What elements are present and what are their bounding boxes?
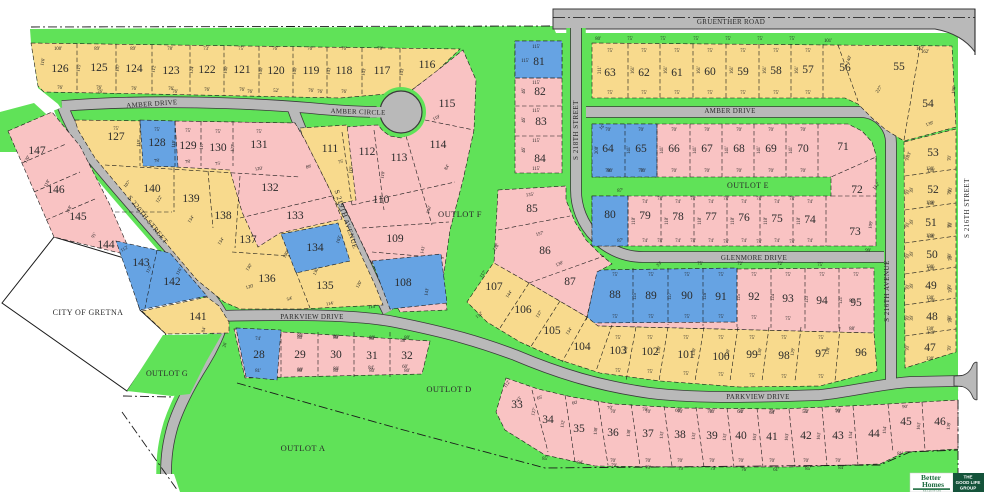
svg-text:113: 113 — [391, 152, 408, 164]
svg-text:70': 70' — [677, 459, 683, 464]
svg-text:125: 125 — [90, 62, 108, 74]
svg-text:70': 70' — [605, 128, 611, 133]
svg-text:75: 75 — [771, 213, 783, 225]
svg-text:140: 140 — [143, 183, 161, 195]
svg-text:70': 70' — [707, 410, 713, 415]
svg-text:38: 38 — [674, 429, 686, 441]
svg-text:71: 71 — [837, 141, 849, 153]
svg-text:141': 141' — [757, 146, 762, 154]
svg-text:75': 75' — [612, 315, 618, 320]
svg-text:80': 80' — [297, 334, 303, 339]
svg-text:79': 79' — [710, 467, 716, 472]
svg-text:115: 115 — [439, 98, 456, 110]
svg-text:AMBER DRIVE: AMBER DRIVE — [704, 107, 755, 115]
svg-text:54: 54 — [922, 98, 934, 110]
svg-text:75': 75' — [612, 273, 618, 278]
svg-text:39': 39' — [910, 187, 915, 193]
svg-text:76': 76' — [57, 86, 63, 91]
svg-text:115': 115' — [532, 167, 540, 172]
svg-text:129: 129 — [179, 140, 197, 152]
svg-text:105: 105 — [543, 325, 561, 337]
svg-text:77: 77 — [705, 211, 717, 223]
svg-text:75': 75' — [683, 372, 689, 377]
svg-text:93: 93 — [782, 293, 794, 305]
svg-text:70': 70' — [645, 459, 651, 464]
svg-text:163': 163' — [785, 433, 791, 441]
svg-text:89': 89' — [94, 47, 100, 52]
svg-text:115': 115' — [532, 109, 540, 114]
svg-text:75': 75' — [785, 273, 791, 278]
svg-text:74': 74' — [774, 200, 780, 205]
svg-text:80': 80' — [297, 368, 303, 373]
svg-text:85': 85' — [805, 467, 811, 472]
svg-text:THE: THE — [964, 475, 973, 480]
svg-text:75': 75' — [693, 37, 699, 42]
svg-text:75': 75' — [707, 91, 713, 96]
svg-text:118': 118' — [731, 217, 736, 225]
svg-text:89': 89' — [130, 47, 136, 52]
svg-text:84': 84' — [838, 466, 844, 471]
svg-text:161': 161' — [730, 66, 735, 74]
svg-text:55': 55' — [802, 410, 808, 415]
svg-text:75': 75' — [697, 262, 703, 267]
svg-text:139: 139 — [182, 193, 200, 205]
svg-text:75': 75' — [751, 316, 757, 321]
svg-text:75': 75' — [757, 37, 763, 42]
svg-text:131': 131' — [692, 432, 698, 440]
svg-text:118': 118' — [698, 217, 703, 225]
svg-text:78': 78' — [167, 47, 173, 52]
svg-text:Homes: Homes — [922, 480, 944, 489]
svg-text:78': 78' — [377, 47, 383, 52]
svg-text:123: 123 — [162, 65, 180, 77]
svg-text:74': 74' — [675, 200, 681, 205]
svg-text:115': 115' — [532, 81, 540, 86]
svg-text:70': 70' — [768, 169, 774, 174]
svg-text:74': 74' — [675, 239, 681, 244]
svg-text:64: 64 — [602, 143, 614, 155]
svg-text:70': 70' — [803, 459, 809, 464]
svg-text:70': 70' — [949, 187, 954, 193]
svg-text:128: 128 — [148, 137, 166, 149]
svg-text:OUTLOT A: OUTLOT A — [281, 443, 326, 453]
svg-text:114': 114' — [368, 305, 376, 311]
svg-text:75': 75' — [781, 375, 787, 380]
svg-text:117': 117' — [200, 142, 206, 150]
svg-text:76': 76' — [168, 87, 174, 92]
svg-text:74': 74' — [708, 239, 714, 244]
svg-text:75': 75' — [773, 49, 779, 54]
svg-text:PARKVIEW DRIVE: PARKVIEW DRIVE — [726, 393, 790, 401]
svg-text:75': 75' — [817, 263, 823, 268]
svg-text:61': 61' — [773, 468, 779, 473]
svg-text:76': 76' — [307, 47, 313, 52]
svg-text:75': 75' — [185, 129, 191, 134]
svg-text:46': 46' — [522, 147, 527, 153]
svg-text:75': 75' — [740, 91, 746, 96]
svg-text:136: 136 — [258, 273, 276, 285]
svg-text:87: 87 — [564, 276, 576, 288]
svg-text:55: 55 — [893, 61, 905, 73]
svg-text:131': 131' — [723, 433, 729, 441]
svg-text:88': 88' — [849, 299, 855, 304]
svg-text:80': 80' — [369, 337, 375, 342]
svg-text:73': 73' — [203, 47, 209, 52]
svg-text:30: 30 — [330, 349, 342, 361]
svg-text:106: 106 — [514, 304, 532, 316]
svg-text:161': 161' — [664, 66, 669, 74]
svg-text:74: 74 — [804, 214, 816, 226]
svg-text:76': 76' — [96, 86, 102, 91]
svg-text:74': 74' — [690, 197, 696, 202]
svg-text:58': 58' — [400, 339, 406, 344]
svg-text:78': 78' — [154, 159, 160, 165]
svg-text:41: 41 — [766, 431, 778, 443]
svg-text:75': 75' — [781, 336, 787, 341]
svg-text:130: 130 — [209, 142, 227, 154]
svg-text:108: 108 — [394, 277, 412, 289]
svg-text:62: 62 — [638, 67, 650, 79]
svg-text:72': 72' — [777, 262, 783, 267]
svg-text:89: 89 — [645, 290, 657, 302]
svg-text:70': 70' — [607, 406, 613, 411]
svg-text:69: 69 — [765, 143, 777, 155]
svg-text:127: 127 — [107, 131, 125, 143]
svg-text:110': 110' — [172, 140, 178, 148]
svg-text:78: 78 — [672, 211, 684, 223]
svg-text:146: 146 — [47, 184, 65, 196]
svg-text:124: 124 — [125, 63, 143, 75]
svg-text:83: 83 — [535, 116, 547, 128]
svg-text:75': 75' — [684, 315, 690, 320]
svg-text:75': 75' — [648, 315, 654, 320]
svg-text:74': 74' — [657, 197, 663, 202]
svg-text:61: 61 — [671, 67, 683, 79]
svg-text:88: 88 — [609, 289, 621, 301]
svg-text:74': 74' — [723, 240, 729, 245]
svg-text:75': 75' — [818, 375, 824, 380]
svg-text:75': 75' — [805, 91, 811, 96]
svg-text:74': 74' — [642, 239, 648, 244]
svg-text:76: 76 — [738, 212, 750, 224]
svg-text:80': 80' — [333, 335, 339, 340]
svg-text:130': 130' — [926, 357, 934, 362]
svg-text:70': 70' — [642, 408, 648, 413]
svg-text:74': 74' — [789, 240, 795, 245]
svg-text:75': 75' — [773, 91, 779, 96]
svg-text:161': 161' — [795, 66, 800, 74]
svg-text:76': 76' — [308, 89, 314, 94]
svg-text:115': 115' — [532, 45, 540, 50]
svg-text:39': 39' — [910, 251, 915, 257]
svg-text:112: 112 — [359, 146, 376, 158]
svg-text:70': 70' — [738, 459, 744, 464]
svg-text:118: 118 — [336, 65, 353, 77]
svg-text:75': 75' — [740, 49, 746, 54]
svg-text:79': 79' — [611, 464, 617, 469]
svg-text:130': 130' — [927, 267, 935, 272]
svg-text:75': 75' — [648, 273, 654, 278]
svg-text:76': 76' — [341, 90, 347, 95]
svg-text:75': 75' — [641, 49, 647, 54]
svg-text:74': 74' — [774, 239, 780, 244]
svg-text:75': 75' — [805, 49, 811, 54]
svg-text:72: 72 — [851, 184, 863, 196]
svg-text:40: 40 — [735, 430, 747, 442]
svg-text:S 218TH STREET: S 218TH STREET — [572, 100, 580, 160]
svg-text:110: 110 — [373, 194, 390, 206]
svg-text:57: 57 — [802, 64, 814, 76]
svg-text:118': 118' — [665, 217, 670, 225]
svg-text:147: 147 — [28, 145, 46, 157]
svg-text:161': 161' — [631, 66, 636, 74]
svg-text:161': 161' — [817, 432, 823, 440]
svg-text:63: 63 — [604, 67, 616, 79]
svg-text:142: 142 — [163, 276, 181, 288]
svg-text:138': 138' — [594, 427, 600, 435]
svg-text:141': 141' — [627, 146, 632, 154]
svg-text:75': 75' — [660, 37, 666, 42]
svg-text:68: 68 — [733, 143, 745, 155]
svg-text:76': 76' — [204, 88, 210, 93]
svg-text:64': 64' — [737, 410, 743, 415]
svg-text:80': 80' — [595, 37, 601, 42]
svg-text:84: 84 — [534, 153, 546, 165]
svg-text:75': 75' — [238, 47, 244, 52]
svg-text:75': 75' — [684, 273, 690, 278]
svg-text:OUTLOT F: OUTLOT F — [438, 209, 482, 219]
svg-text:31: 31 — [366, 350, 378, 362]
svg-text:122: 122 — [198, 64, 216, 76]
svg-text:130': 130' — [927, 202, 935, 207]
svg-text:90': 90' — [835, 409, 841, 414]
svg-text:101': 101' — [824, 39, 832, 44]
svg-text:75': 75' — [647, 370, 653, 375]
svg-text:130': 130' — [927, 235, 935, 240]
svg-text:141': 141' — [693, 146, 698, 154]
svg-text:145: 145 — [69, 211, 87, 223]
svg-text:70': 70' — [949, 317, 954, 323]
svg-text:S 216TH STREET: S 216TH STREET — [963, 178, 971, 238]
svg-text:70': 70' — [949, 222, 954, 228]
svg-text:126': 126' — [703, 292, 708, 300]
svg-text:52': 52' — [273, 89, 279, 94]
svg-text:GRUENTHER ROAD: GRUENTHER ROAD — [697, 18, 765, 26]
svg-text:135': 135' — [526, 193, 534, 199]
svg-text:39': 39' — [910, 219, 915, 225]
svg-text:65: 65 — [635, 143, 647, 155]
svg-text:75': 75' — [819, 273, 825, 278]
svg-text:70': 70' — [800, 169, 806, 174]
svg-text:34: 34 — [542, 414, 554, 426]
svg-text:125': 125' — [737, 293, 742, 301]
svg-text:119: 119 — [303, 65, 320, 77]
svg-text:138: 138 — [214, 210, 232, 222]
svg-text:35: 35 — [573, 423, 585, 435]
svg-text:75': 75' — [674, 91, 680, 96]
svg-text:81: 81 — [533, 56, 545, 68]
svg-text:51: 51 — [925, 217, 937, 229]
svg-text:90': 90' — [902, 405, 908, 410]
svg-text:74': 74' — [756, 197, 762, 202]
svg-text:70': 70' — [835, 459, 841, 464]
svg-text:32: 32 — [401, 350, 413, 362]
svg-text:CITY OF GRETNA: CITY OF GRETNA — [53, 308, 124, 317]
svg-text:130': 130' — [927, 331, 935, 336]
svg-text:85': 85' — [542, 457, 548, 462]
svg-text:130': 130' — [927, 299, 935, 304]
svg-text:75': 75' — [641, 91, 647, 96]
svg-text:109: 109 — [386, 233, 404, 245]
svg-text:76': 76' — [239, 88, 245, 93]
svg-text:70': 70' — [949, 255, 954, 261]
svg-text:74': 74' — [708, 200, 714, 205]
svg-text:75': 75' — [154, 128, 160, 133]
svg-text:92: 92 — [748, 291, 760, 303]
svg-text:74': 74' — [807, 239, 813, 244]
svg-text:211': 211' — [598, 66, 603, 74]
svg-text:70': 70' — [768, 128, 774, 133]
svg-text:154': 154' — [883, 426, 889, 434]
svg-text:79': 79' — [678, 467, 684, 472]
svg-text:37: 37 — [642, 428, 654, 440]
svg-text:126: 126 — [51, 63, 69, 75]
svg-text:60: 60 — [704, 66, 716, 78]
svg-text:99': 99' — [865, 249, 871, 254]
svg-text:131: 131 — [250, 139, 268, 151]
svg-text:107: 107 — [485, 281, 503, 293]
svg-text:50: 50 — [926, 249, 938, 261]
svg-text:161': 161' — [917, 422, 923, 430]
svg-text:76': 76' — [247, 90, 253, 95]
svg-text:74': 74' — [756, 240, 762, 245]
svg-text:70: 70 — [797, 143, 809, 155]
svg-text:144: 144 — [97, 239, 115, 251]
svg-text:75': 75' — [751, 273, 757, 278]
svg-text:162': 162' — [916, 47, 924, 52]
svg-text:118': 118' — [632, 217, 637, 225]
svg-text:76': 76' — [317, 90, 323, 95]
svg-text:76': 76' — [341, 47, 347, 52]
svg-text:75': 75' — [607, 91, 613, 96]
svg-text:141: 141 — [189, 311, 207, 323]
svg-text:88': 88' — [849, 327, 855, 332]
svg-text:75': 75' — [647, 336, 653, 341]
svg-text:75': 75' — [718, 336, 724, 341]
svg-text:75': 75' — [607, 49, 613, 54]
svg-text:70': 70' — [948, 345, 953, 351]
svg-text:46': 46' — [522, 117, 527, 123]
svg-text:116: 116 — [419, 59, 436, 71]
svg-text:75': 75' — [853, 273, 859, 278]
svg-text:74': 74' — [657, 239, 663, 244]
svg-text:75': 75' — [615, 336, 621, 341]
svg-text:70': 70' — [906, 345, 911, 351]
svg-text:70': 70' — [704, 169, 710, 174]
svg-text:127': 127' — [668, 292, 673, 300]
svg-text:76': 76' — [741, 468, 747, 473]
svg-text:42: 42 — [800, 430, 812, 442]
svg-text:75': 75' — [718, 373, 724, 378]
svg-text:186': 186' — [952, 86, 958, 94]
svg-text:74': 74' — [255, 337, 261, 342]
svg-text:74': 74' — [741, 200, 747, 205]
svg-text:36: 36 — [607, 427, 619, 439]
svg-text:75': 75' — [789, 37, 795, 42]
svg-text:121: 121 — [233, 64, 251, 76]
svg-text:117: 117 — [374, 65, 391, 77]
svg-text:29: 29 — [294, 349, 306, 361]
svg-text:163': 163' — [753, 433, 759, 441]
svg-text:91: 91 — [715, 291, 727, 303]
svg-text:161': 161' — [763, 66, 768, 74]
svg-text:133: 133 — [286, 210, 304, 222]
svg-text:75': 75' — [818, 336, 824, 341]
svg-text:OUTLOT E: OUTLOT E — [727, 181, 769, 190]
svg-text:49: 49 — [925, 280, 937, 292]
svg-text:86: 86 — [539, 245, 551, 257]
svg-text:96: 96 — [855, 347, 867, 359]
svg-text:125': 125' — [633, 292, 638, 300]
svg-text:47: 47 — [924, 342, 936, 354]
svg-text:74': 74' — [789, 197, 795, 202]
svg-text:208': 208' — [595, 146, 600, 154]
svg-text:70': 70' — [736, 169, 742, 174]
svg-text:141': 141' — [789, 146, 794, 154]
svg-text:79: 79 — [639, 210, 651, 222]
svg-text:39: 39 — [706, 430, 718, 442]
svg-text:64': 64' — [769, 411, 775, 416]
svg-text:60': 60' — [675, 409, 681, 414]
svg-text:70': 70' — [800, 128, 806, 133]
svg-text:OUTLOT D: OUTLOT D — [426, 384, 471, 394]
svg-text:84': 84' — [368, 366, 374, 371]
svg-text:141': 141' — [660, 146, 665, 154]
svg-text:82: 82 — [534, 86, 546, 98]
svg-text:99: 99 — [746, 349, 758, 361]
svg-text:39': 39' — [910, 315, 915, 321]
svg-text:87': 87' — [617, 239, 623, 244]
svg-text:70': 70' — [709, 459, 715, 464]
svg-text:154': 154' — [849, 431, 855, 439]
svg-text:43: 43 — [832, 430, 844, 442]
svg-text:132: 132 — [261, 182, 279, 194]
svg-text:70': 70' — [638, 128, 644, 133]
svg-text:75': 75' — [683, 336, 689, 341]
svg-text:53: 53 — [927, 147, 939, 159]
svg-text:48: 48 — [926, 311, 938, 323]
svg-text:84': 84' — [577, 461, 583, 466]
svg-text:78': 78' — [185, 160, 191, 166]
svg-text:75': 75' — [256, 130, 262, 135]
svg-text:66: 66 — [668, 143, 680, 155]
svg-text:74': 74' — [723, 197, 729, 202]
svg-text:GLENMORE DRIVE: GLENMORE DRIVE — [721, 254, 787, 262]
svg-text:73: 73 — [849, 226, 861, 238]
svg-text:76': 76' — [131, 87, 137, 92]
svg-text:67: 67 — [701, 143, 713, 155]
svg-text:28: 28 — [253, 349, 265, 361]
svg-text:118': 118' — [764, 217, 769, 225]
svg-text:138': 138' — [627, 429, 633, 437]
svg-text:OUTLOT G: OUTLOT G — [146, 369, 188, 378]
svg-text:85: 85 — [526, 203, 538, 215]
svg-text:70': 70' — [671, 169, 677, 174]
svg-text:75': 75' — [785, 317, 791, 322]
svg-text:137: 137 — [239, 234, 257, 246]
svg-text:75': 75' — [718, 315, 724, 320]
svg-text:80': 80' — [607, 169, 613, 174]
